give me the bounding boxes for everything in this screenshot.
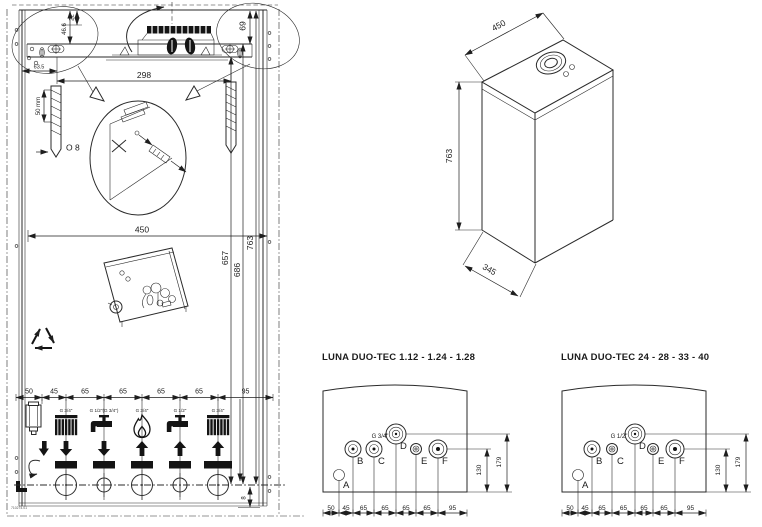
flue-collar-icon xyxy=(533,48,574,77)
dim-bottom-50: 50 xyxy=(25,389,33,396)
dim: 65 xyxy=(660,505,668,512)
manual-page: 22 46.6 69 63.5 298 xyxy=(0,0,762,527)
dim-bottom-65b: 65 xyxy=(119,389,127,396)
dim-width-450: 450 xyxy=(490,17,507,33)
port-e-label: E xyxy=(658,456,664,467)
dim-69: 69 xyxy=(238,21,248,31)
crossed-hole-icon xyxy=(112,140,126,152)
wall-plug-detail xyxy=(90,101,186,215)
fitting-label-3: G 3/4" xyxy=(136,408,149,413)
flow-down-arrow-icon xyxy=(60,441,72,456)
pipe-size-label: G 1/2" xyxy=(611,434,628,440)
dim-179: 179 xyxy=(735,456,742,467)
hydraulic-assembly xyxy=(104,248,188,327)
port-d-label: D xyxy=(639,441,646,452)
port-c-label: C xyxy=(378,456,385,467)
dim-130: 130 xyxy=(476,464,483,475)
pipe-size-label: G 3/4" xyxy=(372,434,389,440)
part-code: 710274.01 xyxy=(11,506,27,510)
dim-bottom-45: 45 xyxy=(50,389,58,396)
detail-callout-ellipses xyxy=(3,0,307,101)
drill-bit-left xyxy=(51,86,61,157)
diagram-bottom-dimensions: 50 45 65 65 65 65 95 xyxy=(323,505,467,517)
radiator-icon xyxy=(207,415,229,435)
dim-46-6: 46.6 xyxy=(62,23,68,35)
dim-bottom-95: 95 xyxy=(242,389,250,396)
diagram-title: LUNA DUO-TEC 1.12 - 1.24 - 1.28 xyxy=(322,352,475,363)
dim-179: 179 xyxy=(496,456,503,467)
dim-22: 22 xyxy=(70,14,76,21)
port-d-label: D xyxy=(400,441,407,452)
dim: 45 xyxy=(581,505,589,512)
dim-763: 763 xyxy=(245,236,255,250)
dim: 65 xyxy=(598,505,606,512)
port-a-label: A xyxy=(343,480,350,491)
diagram-title: LUNA DUO-TEC 24 - 28 - 33 - 40 xyxy=(561,352,709,363)
flow-up-arrow-icon xyxy=(174,441,186,456)
dim-drill-diameter: O 8 xyxy=(66,143,80,153)
port-f-label: F xyxy=(679,456,685,467)
dim: 65 xyxy=(640,505,648,512)
drill-bits: 50 mm O 8 xyxy=(36,82,236,157)
fitting-label-2: G 1/2"(G 3/4") xyxy=(90,408,119,413)
connection-ports xyxy=(573,424,685,481)
dim: 65 xyxy=(360,505,368,512)
dim-8: 8 xyxy=(242,496,248,500)
boiler-isometric: 450 763 345 xyxy=(444,13,613,297)
condensate-siphon xyxy=(16,402,49,492)
port-c-label: C xyxy=(617,456,624,467)
port-e-label: E xyxy=(421,456,427,467)
dim-drill-depth: 50 mm xyxy=(36,97,42,115)
recycle-icon xyxy=(32,328,54,348)
leader-lines xyxy=(339,444,438,513)
height-dimensions: 657 686 763 xyxy=(220,11,256,484)
dim-depth-345: 345 xyxy=(481,262,499,278)
dim: 65 xyxy=(402,505,410,512)
dim-bottom-65d: 65 xyxy=(195,389,203,396)
dim: 95 xyxy=(449,505,457,512)
dim-298: 298 xyxy=(137,70,151,80)
faucet-icon xyxy=(167,415,188,432)
flow-up-arrow-icon xyxy=(212,441,224,456)
dim-63-5: 63.5 xyxy=(34,65,45,71)
faucet-icon xyxy=(91,415,112,432)
fitting-label-4: G 1/2" xyxy=(174,408,187,413)
diagram-bottom-dimensions: 50 45 65 65 65 65 95 xyxy=(562,505,706,517)
port-b-label: B xyxy=(357,456,363,467)
edge-dimension: 8 xyxy=(238,487,260,508)
dim: 65 xyxy=(620,505,628,512)
dim-657: 657 xyxy=(220,251,230,265)
template-frame xyxy=(7,5,305,516)
dim: 50 xyxy=(327,505,335,512)
dim-bottom-65c: 65 xyxy=(157,389,165,396)
boiler-dimensions: 450 763 345 xyxy=(444,13,564,297)
dim-686: 686 xyxy=(232,263,242,277)
port-letters: A B C D E F xyxy=(582,441,685,491)
callout-arrow-icon xyxy=(90,87,104,101)
dim-bottom-65a: 65 xyxy=(81,389,89,396)
dim: 65 xyxy=(423,505,431,512)
fitting-label-1: G 3/4" xyxy=(60,408,73,413)
flow-up-arrow-icon xyxy=(136,441,148,456)
dim-height-763: 763 xyxy=(444,149,454,163)
port-f-label: F xyxy=(442,456,448,467)
fitting-label-5: G 3/4" xyxy=(212,408,225,413)
dim: 65 xyxy=(381,505,389,512)
radiator-icon xyxy=(55,415,77,435)
flow-down-arrow-icon xyxy=(39,441,49,456)
connection-diagram-112: LUNA DUO-TEC 1.12 - 1.24 - 1.28 G 3/4" A… xyxy=(322,352,512,517)
flow-down-arrow-icon xyxy=(98,441,110,456)
port-b-label: B xyxy=(596,456,602,467)
dim: 50 xyxy=(566,505,574,512)
drain-hook-icon xyxy=(29,460,40,474)
dim-450: 450 xyxy=(135,225,149,235)
connection-diagram-24: LUNA DUO-TEC 24 - 28 - 33 - 40 G 1/2" A … xyxy=(561,352,751,517)
technical-drawing: 22 46.6 69 63.5 298 xyxy=(0,0,762,527)
fitting-columns: G 3/4" G 1/2"(G 3/4") G 3/4" G 1/2" G 3/… xyxy=(55,408,232,469)
dim: 95 xyxy=(687,505,695,512)
mounting-bracket xyxy=(27,44,252,65)
leader-lines xyxy=(578,444,675,513)
connection-ports xyxy=(334,424,448,481)
flue-top-view xyxy=(106,2,228,60)
dim: 45 xyxy=(342,505,350,512)
callout-arrow-icon xyxy=(186,86,200,100)
drill-axis xyxy=(14,470,286,500)
port-a-label: A xyxy=(582,480,589,491)
dim-130: 130 xyxy=(715,464,722,475)
wall-template: 22 46.6 69 63.5 298 xyxy=(3,0,307,516)
